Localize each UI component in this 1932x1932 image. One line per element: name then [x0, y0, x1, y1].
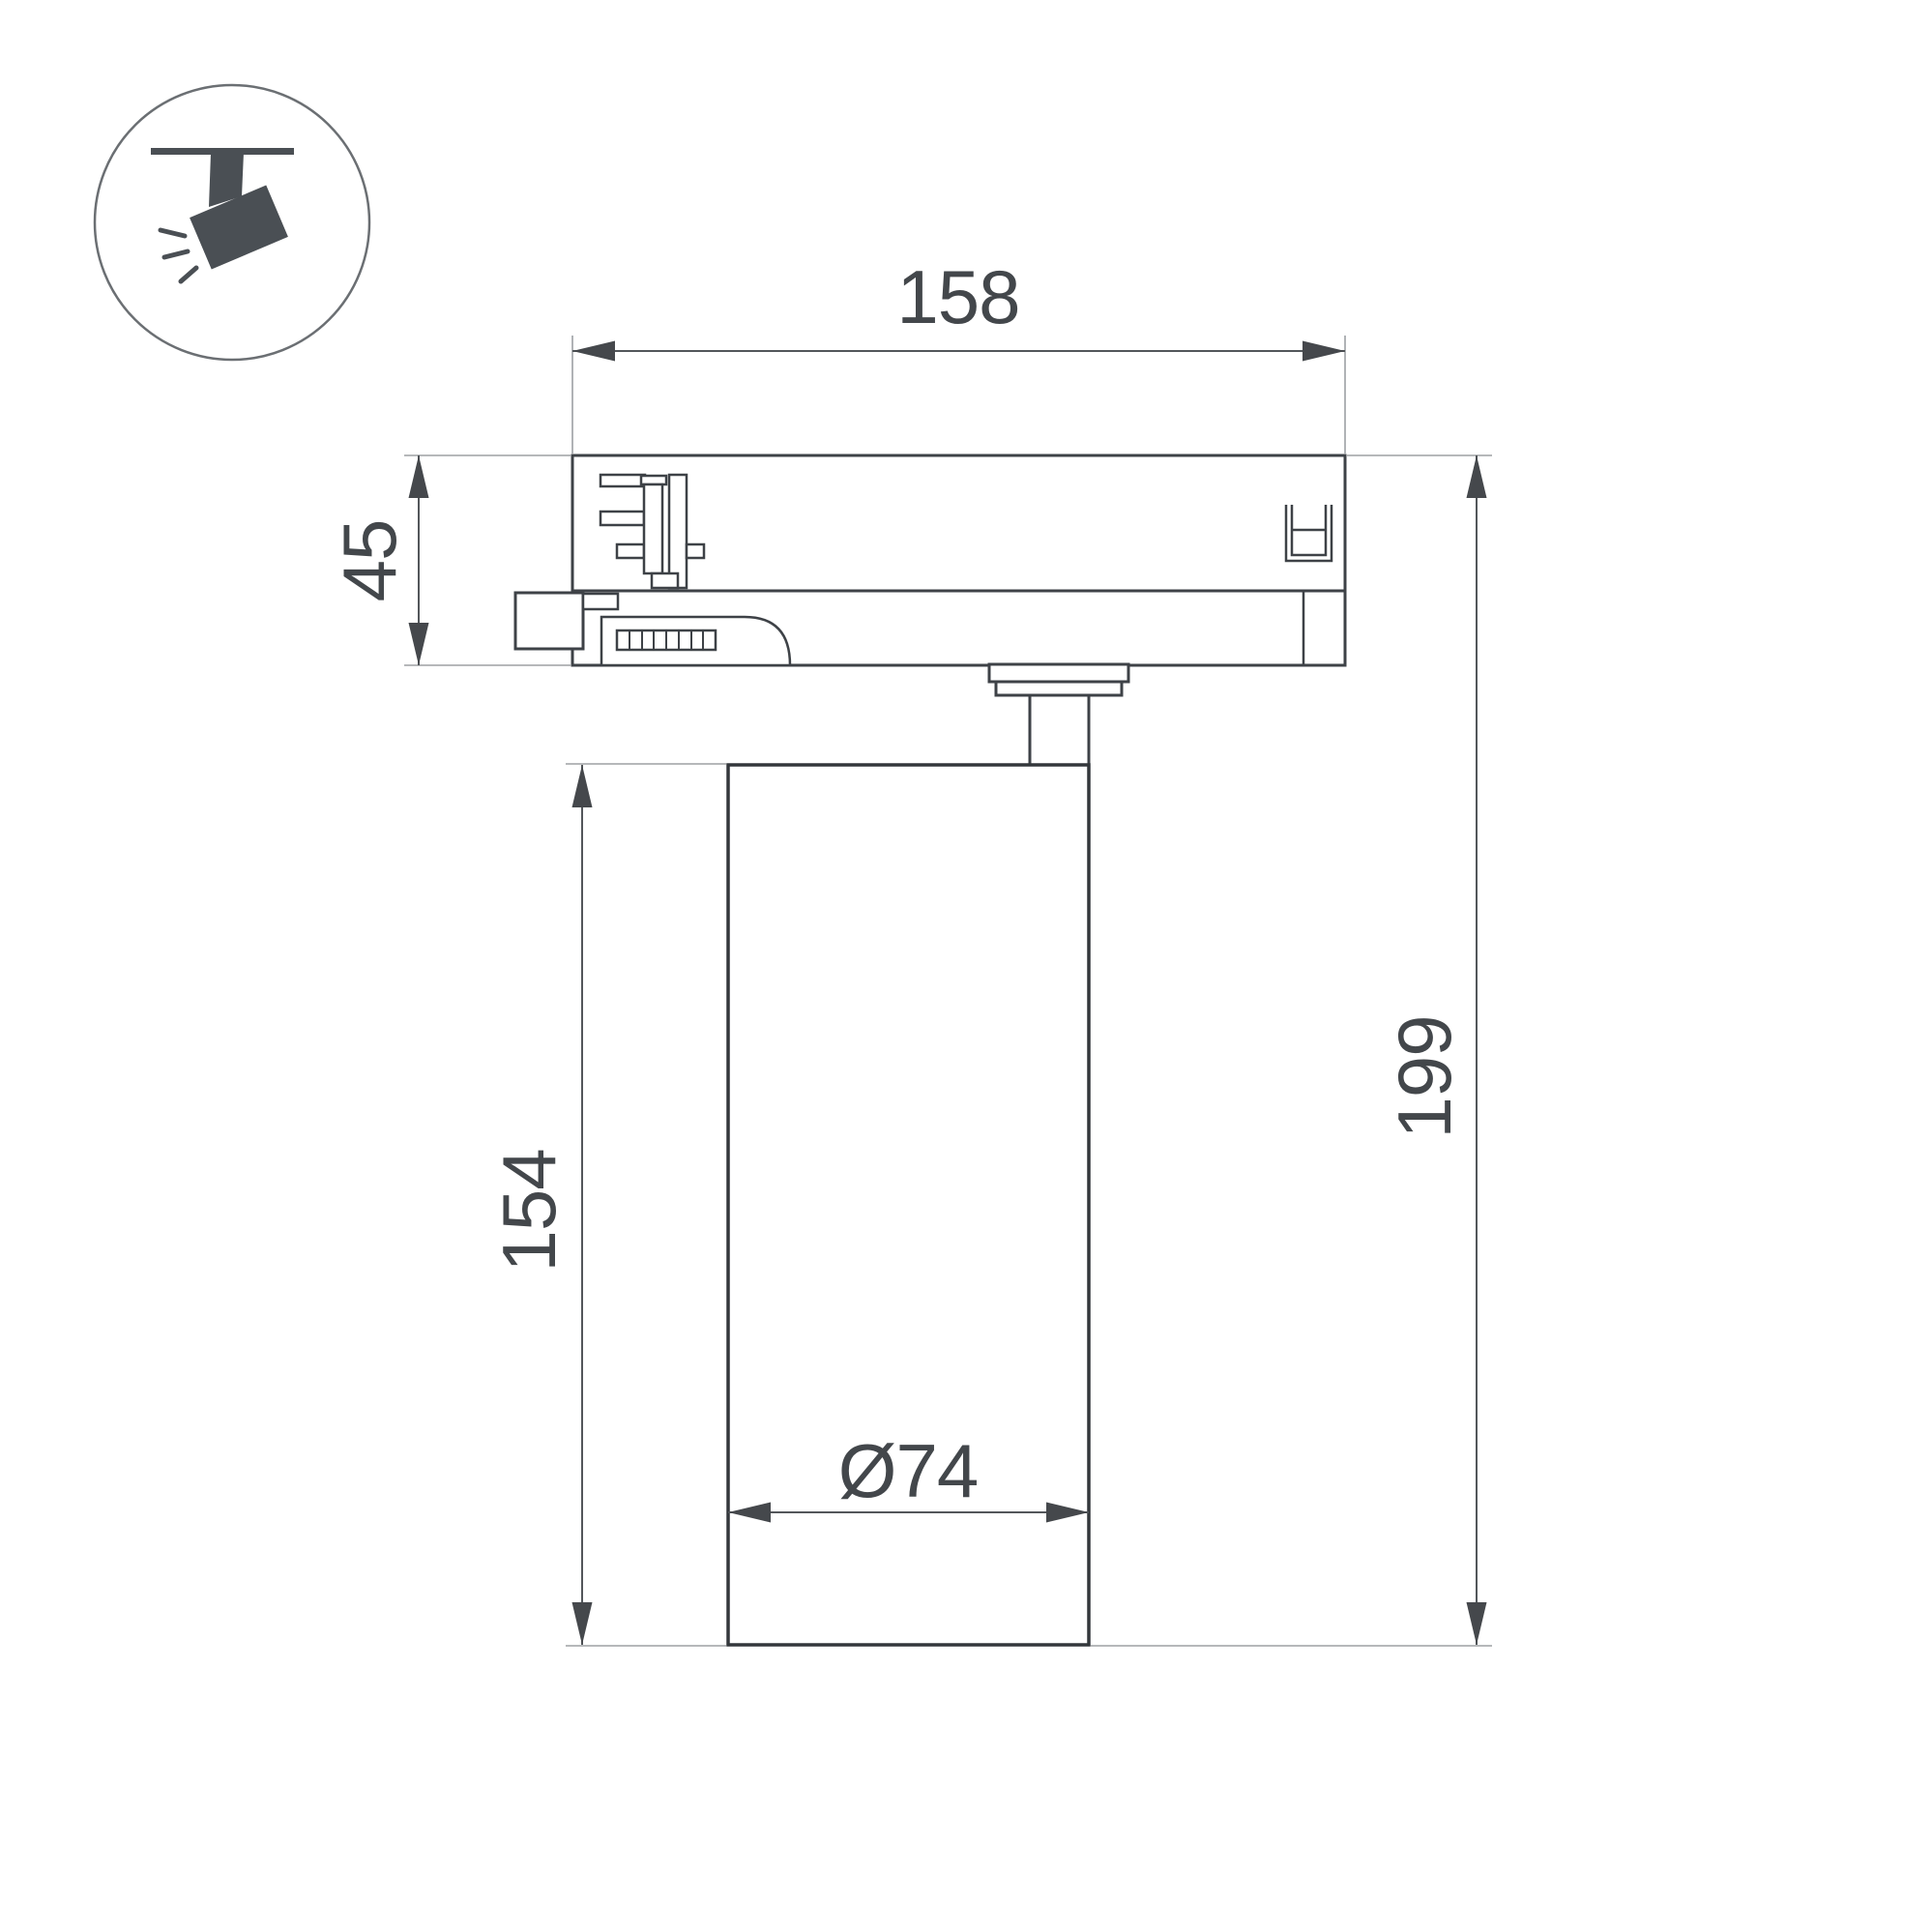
- contact-prong-top: [600, 475, 645, 486]
- dimension-drawing-canvas: 158 45 154 199 Ø74: [0, 0, 1932, 1932]
- contact-side-notch: [687, 544, 704, 558]
- arrow-right-icon: [1303, 341, 1345, 362]
- contact-pin-cap: [641, 476, 666, 484]
- pivot-plate-lower: [996, 682, 1122, 695]
- dimension-199: 199: [1382, 455, 1487, 1645]
- contact-carrier-column: [669, 475, 687, 588]
- dimension-label-body-height: 154: [486, 1149, 571, 1272]
- dimension-158: 158: [572, 254, 1345, 362]
- dip-switch: [617, 630, 716, 650]
- locking-lever: [515, 593, 583, 649]
- pivot-plate-upper: [989, 664, 1128, 682]
- arrow-down-icon: [1467, 1602, 1487, 1645]
- contact-prong-middle: [600, 512, 644, 525]
- lever-latch-plate: [583, 594, 618, 609]
- arrow-up-icon: [572, 765, 593, 807]
- contact-pin: [644, 484, 662, 573]
- arrow-up-icon: [409, 455, 429, 498]
- dimension-label-width: 158: [896, 254, 1019, 339]
- arrow-left-icon: [572, 341, 615, 362]
- pivot-stem: [1030, 695, 1089, 765]
- dimension-label-diameter: Ø74: [838, 1428, 978, 1513]
- dimension-154: 154: [486, 765, 593, 1645]
- arrow-down-icon: [409, 623, 429, 665]
- pivot-assembly: [989, 664, 1128, 765]
- contact-foot: [652, 573, 678, 588]
- dimension-label-adapter-height: 45: [327, 520, 412, 602]
- dimension-label-overall-height: 199: [1382, 1015, 1467, 1138]
- dimension-45: 45: [327, 455, 429, 665]
- arrow-down-icon: [572, 1602, 593, 1645]
- track-adapter: [515, 455, 1345, 665]
- track-spotlight-icon: [95, 85, 369, 360]
- contact-prong-bottom: [617, 544, 644, 558]
- arrow-up-icon: [1467, 455, 1487, 498]
